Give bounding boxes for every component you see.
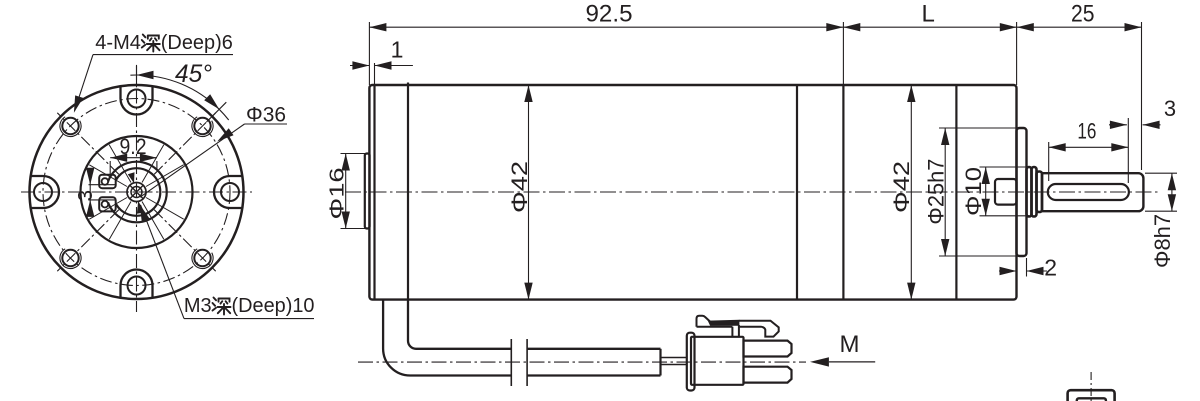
svg-text:Φ25h7: Φ25h7 xyxy=(924,159,949,225)
svg-text:Φ42: Φ42 xyxy=(889,161,914,213)
svg-text:M: M xyxy=(840,331,860,358)
svg-text:45°: 45° xyxy=(175,60,212,88)
svg-text:L: L xyxy=(922,1,935,28)
svg-text:Φ36: Φ36 xyxy=(246,102,286,126)
svg-text:2: 2 xyxy=(1044,255,1057,281)
svg-text:1: 1 xyxy=(391,37,404,63)
svg-text:(Deep)10: (Deep)10 xyxy=(232,295,315,317)
svg-text:Φ16: Φ16 xyxy=(327,168,349,220)
svg-text:3: 3 xyxy=(75,190,97,201)
svg-text:92.5: 92.5 xyxy=(586,1,633,28)
svg-text:Φ8h7: Φ8h7 xyxy=(1150,214,1175,268)
svg-text:3: 3 xyxy=(1164,96,1176,121)
svg-text:25: 25 xyxy=(1071,1,1095,28)
svg-text:16: 16 xyxy=(1077,119,1096,144)
svg-text:Φ10: Φ10 xyxy=(961,167,986,216)
svg-text:Φ42: Φ42 xyxy=(507,161,532,213)
svg-text:M3: M3 xyxy=(184,295,212,317)
svg-text:(Deep)6: (Deep)6 xyxy=(161,32,233,54)
svg-text:4-M4: 4-M4 xyxy=(95,32,141,54)
svg-text:9.2: 9.2 xyxy=(120,134,147,159)
